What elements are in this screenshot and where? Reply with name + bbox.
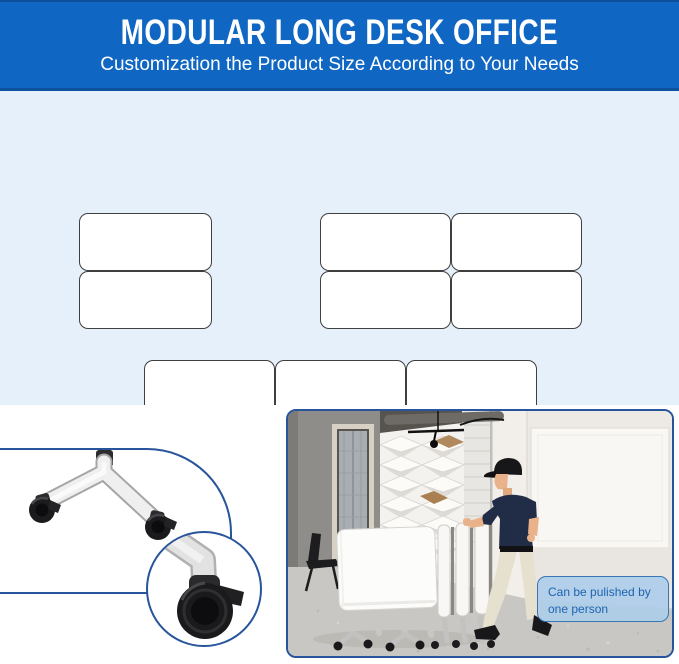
bottom-section: Can be pulished by one person [0,405,679,664]
wall-panel [531,428,669,548]
caption-text: Can be pulished by one person [548,585,651,616]
folded-desks-behind [438,521,492,617]
caption-badge: Can be pulished by one person [537,576,669,622]
desk-group-two [79,213,212,329]
caster-closeup-icon [148,533,260,645]
desk-top-cell [451,213,582,271]
office-photo-panel: Can be pulished by one person [286,409,674,658]
page-title: MODULAR LONG DESK OFFICE [121,14,558,52]
belt [500,546,533,552]
desk-top-cell [451,271,582,329]
desk-group-four [320,213,582,329]
page-subtitle: Customization the Product Size According… [100,53,578,76]
desk-top-cell [79,271,212,329]
caster-zoom-circle [146,531,262,647]
desk-top-cell [320,271,451,329]
desk-top-cell [79,213,212,271]
size-diagram-section [0,91,679,405]
product-infographic: MODULAR LONG DESK OFFICE Customization t… [0,0,679,664]
header-banner: MODULAR LONG DESK OFFICE Customization t… [0,0,679,91]
desk-top-cell [320,213,451,271]
folded-desk-front [337,526,438,610]
